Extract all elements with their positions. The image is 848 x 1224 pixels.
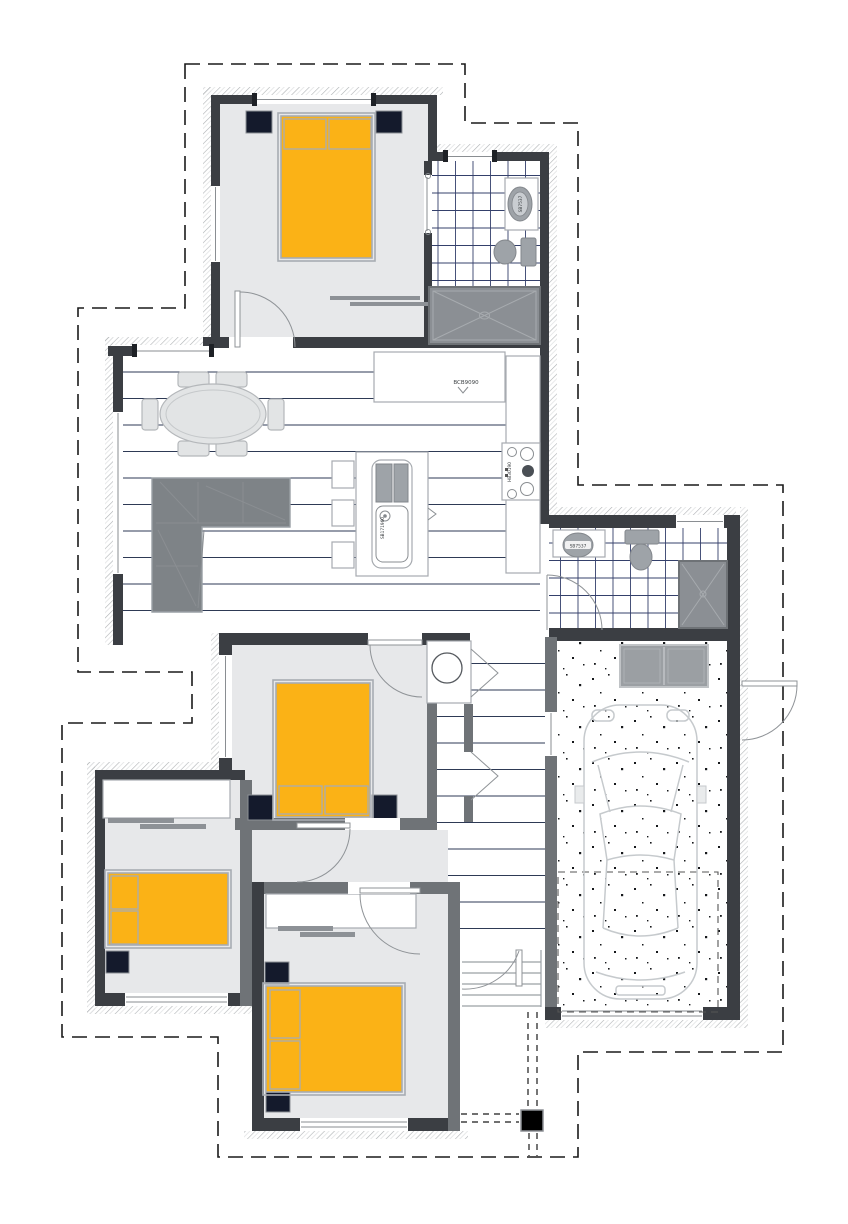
toilet-bowl bbox=[630, 544, 652, 570]
wardrobe-sliding-door bbox=[350, 302, 440, 306]
wardrobe bbox=[266, 894, 416, 928]
toilet-tank bbox=[521, 238, 536, 266]
pillow bbox=[329, 119, 371, 149]
wardrobe-sliding-door bbox=[108, 818, 174, 823]
garage-side-door-leaf bbox=[742, 681, 797, 686]
corridor-floor bbox=[252, 830, 448, 882]
pillow bbox=[111, 876, 138, 909]
dining-chair bbox=[142, 399, 158, 430]
floor-plan-canvas: SB7537 BCB9090 HB30190 SB171960 bbox=[0, 0, 848, 1224]
nightstand bbox=[372, 795, 397, 820]
pillow bbox=[284, 119, 326, 149]
nightstand bbox=[266, 1090, 290, 1112]
nightstand bbox=[246, 111, 272, 133]
stool bbox=[332, 542, 354, 568]
wardrobe-sliding-door bbox=[278, 926, 333, 931]
door-leaf bbox=[360, 888, 420, 893]
bedroom3 bbox=[103, 780, 231, 973]
basin-label: SB7537 bbox=[518, 195, 524, 212]
pillow bbox=[279, 786, 322, 814]
stool bbox=[332, 500, 354, 526]
nightstand bbox=[265, 962, 289, 984]
wardrobe-sliding-door bbox=[330, 296, 420, 300]
wardrobe-sliding-door bbox=[300, 932, 355, 937]
wardrobe-sliding-door bbox=[140, 824, 206, 829]
wardrobe bbox=[103, 780, 230, 818]
entry-porch bbox=[460, 944, 542, 1010]
pillow bbox=[270, 990, 300, 1038]
bedroom4 bbox=[263, 882, 420, 1112]
stool bbox=[332, 461, 354, 488]
toilet-bowl bbox=[494, 240, 516, 264]
porch-post bbox=[521, 1110, 543, 1131]
fridge-space bbox=[374, 352, 505, 402]
door-leaf bbox=[368, 640, 422, 645]
floor-plan-drawing: SB7537 BCB9090 HB30190 SB171960 bbox=[0, 0, 848, 1224]
hot-water-cylinder bbox=[432, 653, 462, 683]
nightstand bbox=[248, 795, 273, 820]
fridge-space-label: BCB9090 bbox=[453, 380, 479, 386]
island-sink-label: SB171960 bbox=[380, 517, 386, 539]
nightstand bbox=[106, 951, 129, 973]
basin-label: SB7537 bbox=[570, 544, 587, 550]
pillow bbox=[325, 786, 368, 814]
door-leaf bbox=[235, 291, 240, 347]
dining-table bbox=[160, 384, 266, 444]
cooktop-label: HB30190 bbox=[507, 462, 513, 482]
toilet-tank bbox=[625, 530, 659, 544]
nightstand bbox=[376, 111, 402, 133]
pillow bbox=[111, 911, 138, 944]
garage-concrete-floor bbox=[557, 641, 727, 1007]
garage-side-door-swing bbox=[742, 685, 797, 740]
dining-chair bbox=[268, 399, 284, 430]
door-leaf bbox=[297, 823, 350, 828]
garage-door bbox=[561, 1007, 703, 1020]
pillow bbox=[270, 1041, 300, 1089]
